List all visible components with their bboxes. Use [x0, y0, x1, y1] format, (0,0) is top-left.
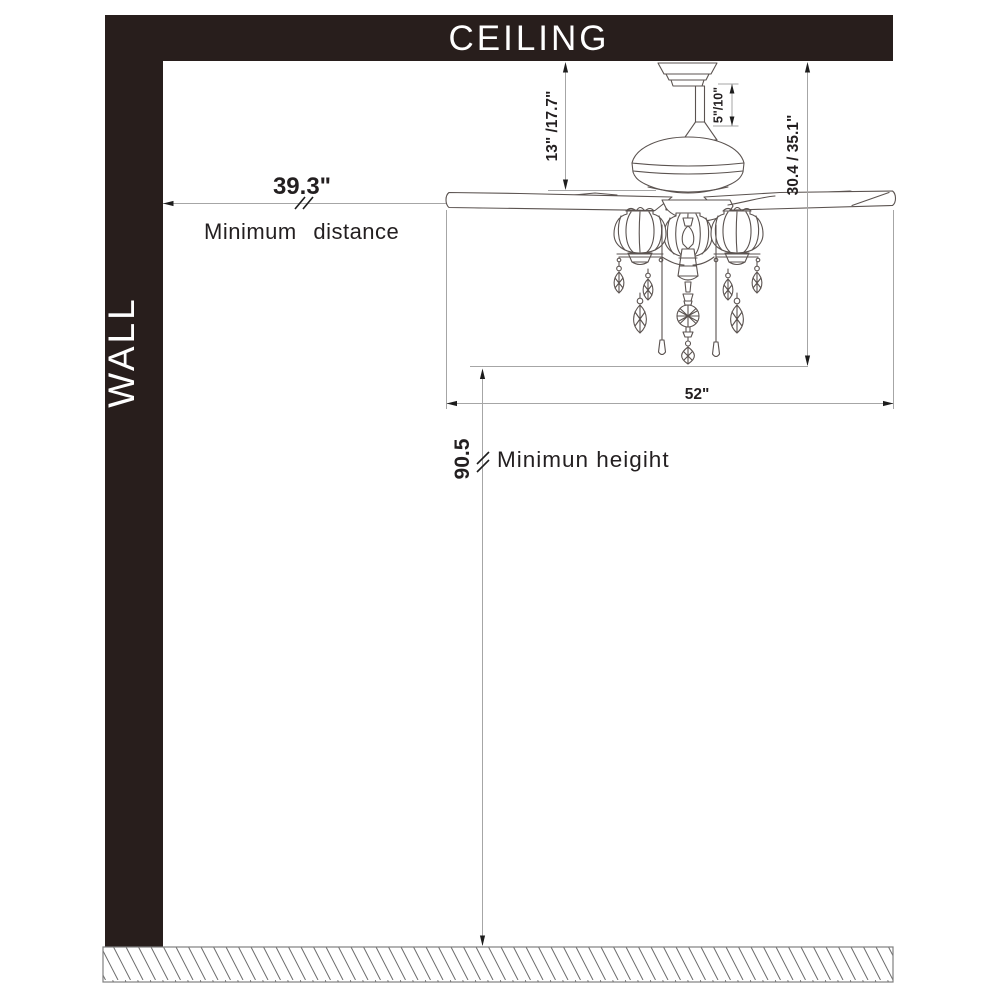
wall-band — [105, 15, 163, 947]
min-height-value: 90.5 — [451, 438, 474, 479]
min-distance-label: Minimum distance — [204, 219, 399, 244]
floor-hatch — [103, 947, 893, 982]
melon-shade-left — [614, 208, 666, 265]
ceiling-to-blade-value: 13" /17.7" — [544, 91, 561, 162]
ceiling-fan-drawing — [446, 63, 896, 364]
canopy — [658, 63, 717, 86]
chandelier-light-kit — [614, 208, 763, 365]
ceiling-to-light-value: 30.4 / 35.1" — [785, 115, 802, 196]
motor-housing — [632, 137, 744, 193]
structure-bands: CEILING WALL — [101, 15, 893, 947]
installation-diagram: CEILING WALL — [0, 0, 1000, 1000]
wall-label: WALL — [101, 296, 142, 407]
fan-installation-diagram-page: CEILING WALL — [0, 0, 1000, 1000]
blade-sweep-value: 52" — [685, 386, 710, 403]
ceiling-label: CEILING — [448, 19, 609, 58]
downrod-length-value: 5"/10" — [712, 87, 726, 123]
melon-shade-right — [711, 208, 763, 265]
floor — [103, 947, 893, 982]
bottom-crystal-drop — [682, 337, 695, 364]
min-distance-value: 39.3" — [273, 173, 331, 200]
crystal-ball — [677, 301, 699, 337]
min-height-label: Minimun heigiht — [497, 447, 670, 472]
